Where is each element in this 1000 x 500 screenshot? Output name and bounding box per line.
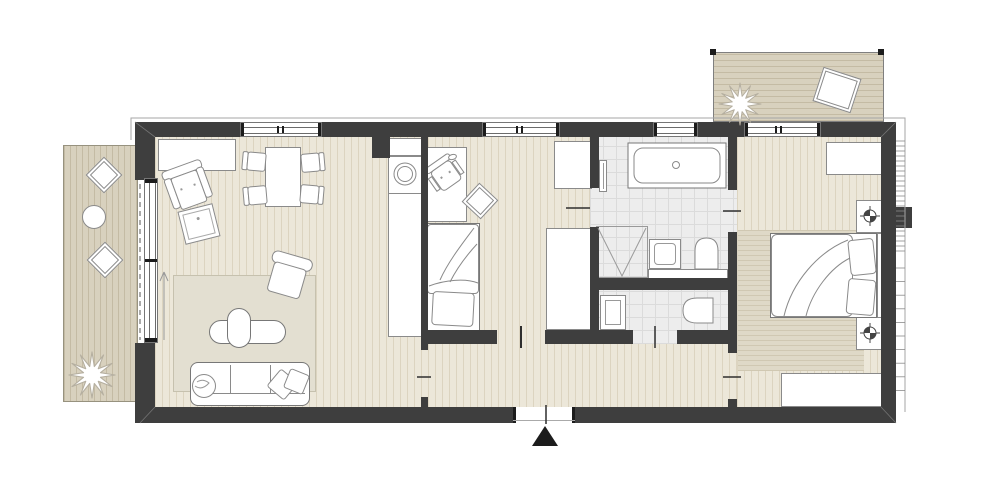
wall-miter	[881, 407, 896, 423]
wall-miter	[140, 407, 155, 423]
floor-plan	[0, 0, 1000, 500]
toilet	[683, 298, 713, 323]
washing-machine-icon	[394, 163, 416, 185]
wall-miter	[881, 122, 896, 137]
bathtub	[628, 143, 726, 188]
heating-point-icon	[860, 323, 880, 343]
roof-outline	[131, 118, 905, 412]
plant-icon	[719, 83, 761, 125]
plant-icon	[69, 352, 115, 398]
sofa-round-pillow	[193, 375, 216, 398]
shower-icon	[598, 228, 646, 276]
section-hatch	[896, 141, 905, 390]
plan-overlay	[0, 0, 1000, 500]
heating-point-icon	[860, 206, 880, 226]
wall-miter	[135, 122, 155, 137]
entrance-marker-icon	[532, 426, 558, 446]
toilet	[695, 238, 718, 269]
opening-arrow-icon	[160, 272, 168, 340]
